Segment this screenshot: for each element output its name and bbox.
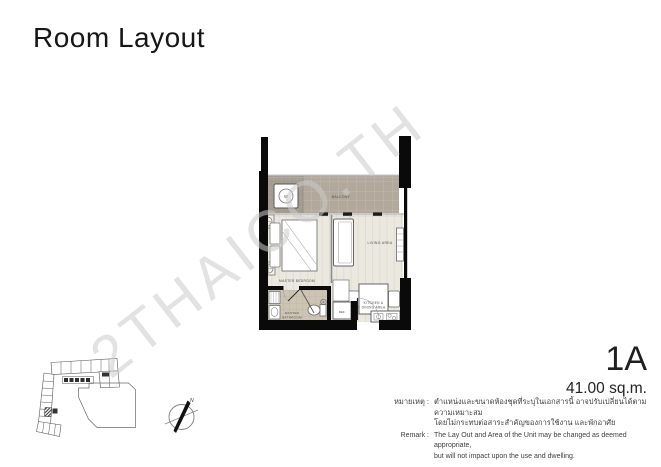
north-label: N (190, 398, 194, 404)
remark-en-line2: but will not impact upon the use and dwe… (434, 452, 649, 463)
toilet (308, 305, 326, 317)
room-label-bathroom-2: BATHROOM (282, 315, 302, 319)
remark-thai-line1: ตำแหน่งและขนาดห้องชุดที่ระบุในเอกสารนี้ … (434, 397, 649, 418)
dining-chair (389, 291, 400, 307)
compass-icon: N (162, 395, 202, 437)
remark-en-line1: The Lay Out and Area of the Unit may be … (434, 431, 649, 452)
unit-code: 1A (566, 342, 647, 378)
room-label-kitchen-1: KITCHEN & (364, 301, 384, 305)
room-label-bathroom-1: MASTER (285, 311, 300, 315)
floor-plan: W (257, 134, 411, 330)
bathroom-shelves (269, 292, 280, 304)
fridge: REF. (333, 302, 351, 319)
room-label-master-bedroom: MASTER BEDROOM (279, 279, 315, 283)
building-key-plan (33, 356, 140, 444)
keyplan-podium-outline (79, 383, 136, 428)
remark-en-label: Remark : (383, 431, 429, 452)
highlighted-unit-marker (44, 407, 51, 416)
sofa (334, 219, 354, 266)
page-title: Room Layout (33, 22, 205, 54)
cabinet (333, 280, 349, 301)
room-label-balcony: BALCONY (332, 195, 351, 199)
room-label-living-area: LIVING AREA (367, 241, 392, 245)
washer-label: W (284, 194, 288, 199)
remark-thai-line2: โดยไม่กระทบต่อสาระสำคัญของการใช้งาน และพ… (434, 418, 649, 429)
room-layout-page: Room Layout (0, 0, 661, 467)
tv-console (397, 228, 404, 261)
remark-block: หมายเหตุ : ตำแหน่งและขนาดห้องชุดที่ระบุใ… (383, 397, 649, 462)
washing-machine-icon: W (274, 184, 298, 208)
remark-thai-label: หมายเหตุ : (383, 397, 429, 418)
unit-area: 41.00 sq.m. (566, 380, 647, 398)
fridge-label: REF. (339, 310, 345, 314)
bathroom-sink (269, 306, 280, 320)
room-label-kitchen-2: DINING AREA (362, 306, 386, 310)
unit-info: 1A 41.00 sq.m. (566, 342, 647, 398)
